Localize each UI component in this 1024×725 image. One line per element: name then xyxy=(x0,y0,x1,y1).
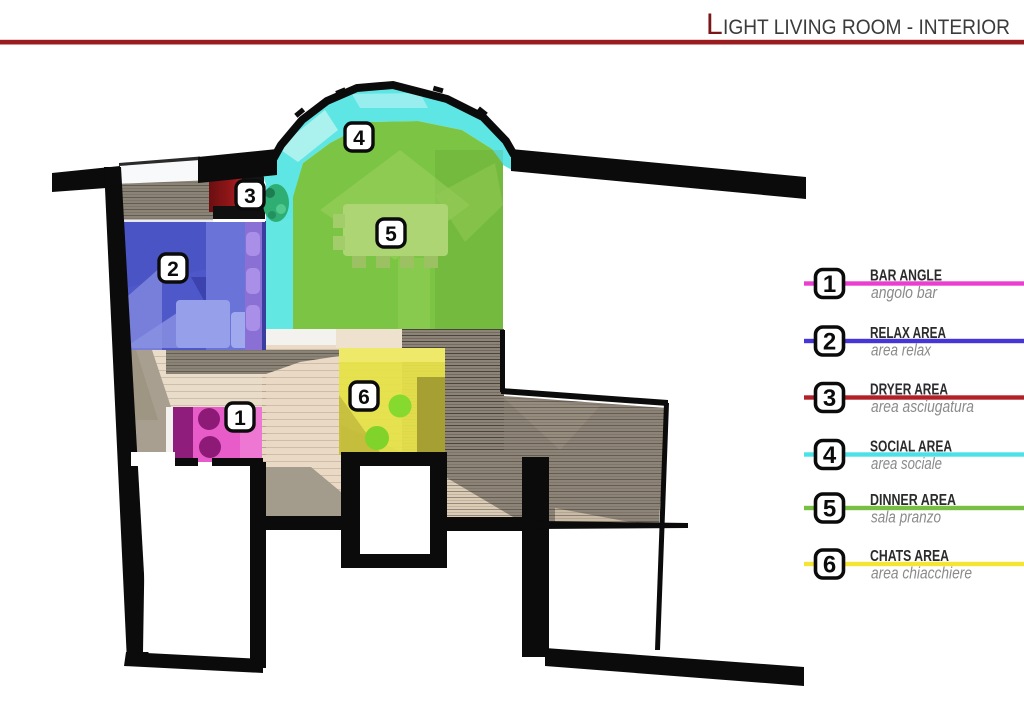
svg-text:1: 1 xyxy=(234,407,246,430)
svg-text:DRYER AREA: DRYER AREA xyxy=(870,382,948,399)
svg-text:2: 2 xyxy=(823,329,836,356)
svg-text:1: 1 xyxy=(823,271,836,298)
svg-text:DINNER AREA: DINNER AREA xyxy=(870,492,956,509)
svg-text:area sociale: area sociale xyxy=(871,455,942,473)
svg-text:6: 6 xyxy=(823,552,836,579)
svg-text:6: 6 xyxy=(358,386,370,409)
svg-text:sala pranzo: sala pranzo xyxy=(871,509,941,527)
svg-text:3: 3 xyxy=(823,385,836,412)
svg-text:L: L xyxy=(706,8,723,41)
svg-text:area relax: area relax xyxy=(871,342,932,360)
svg-text:5: 5 xyxy=(385,223,397,246)
svg-text:4: 4 xyxy=(353,127,365,150)
svg-text:BAR ANGLE: BAR ANGLE xyxy=(870,268,942,285)
svg-text:CHATS AREA: CHATS AREA xyxy=(870,548,949,565)
svg-text:2: 2 xyxy=(167,258,179,281)
svg-text:4: 4 xyxy=(823,442,837,469)
svg-text:angolo bar: angolo bar xyxy=(871,284,938,302)
svg-text:3: 3 xyxy=(244,185,256,208)
svg-text:5: 5 xyxy=(823,496,836,523)
svg-text:area chiacchiere: area chiacchiere xyxy=(871,565,972,583)
svg-text:area asciugatura: area asciugatura xyxy=(871,398,974,416)
svg-text:RELAX AREA: RELAX AREA xyxy=(870,325,946,342)
svg-text:IGHT LIVING ROOM - INTERIOR: IGHT LIVING ROOM - INTERIOR xyxy=(723,15,1010,39)
svg-text:SOCIAL AREA: SOCIAL AREA xyxy=(870,439,952,456)
